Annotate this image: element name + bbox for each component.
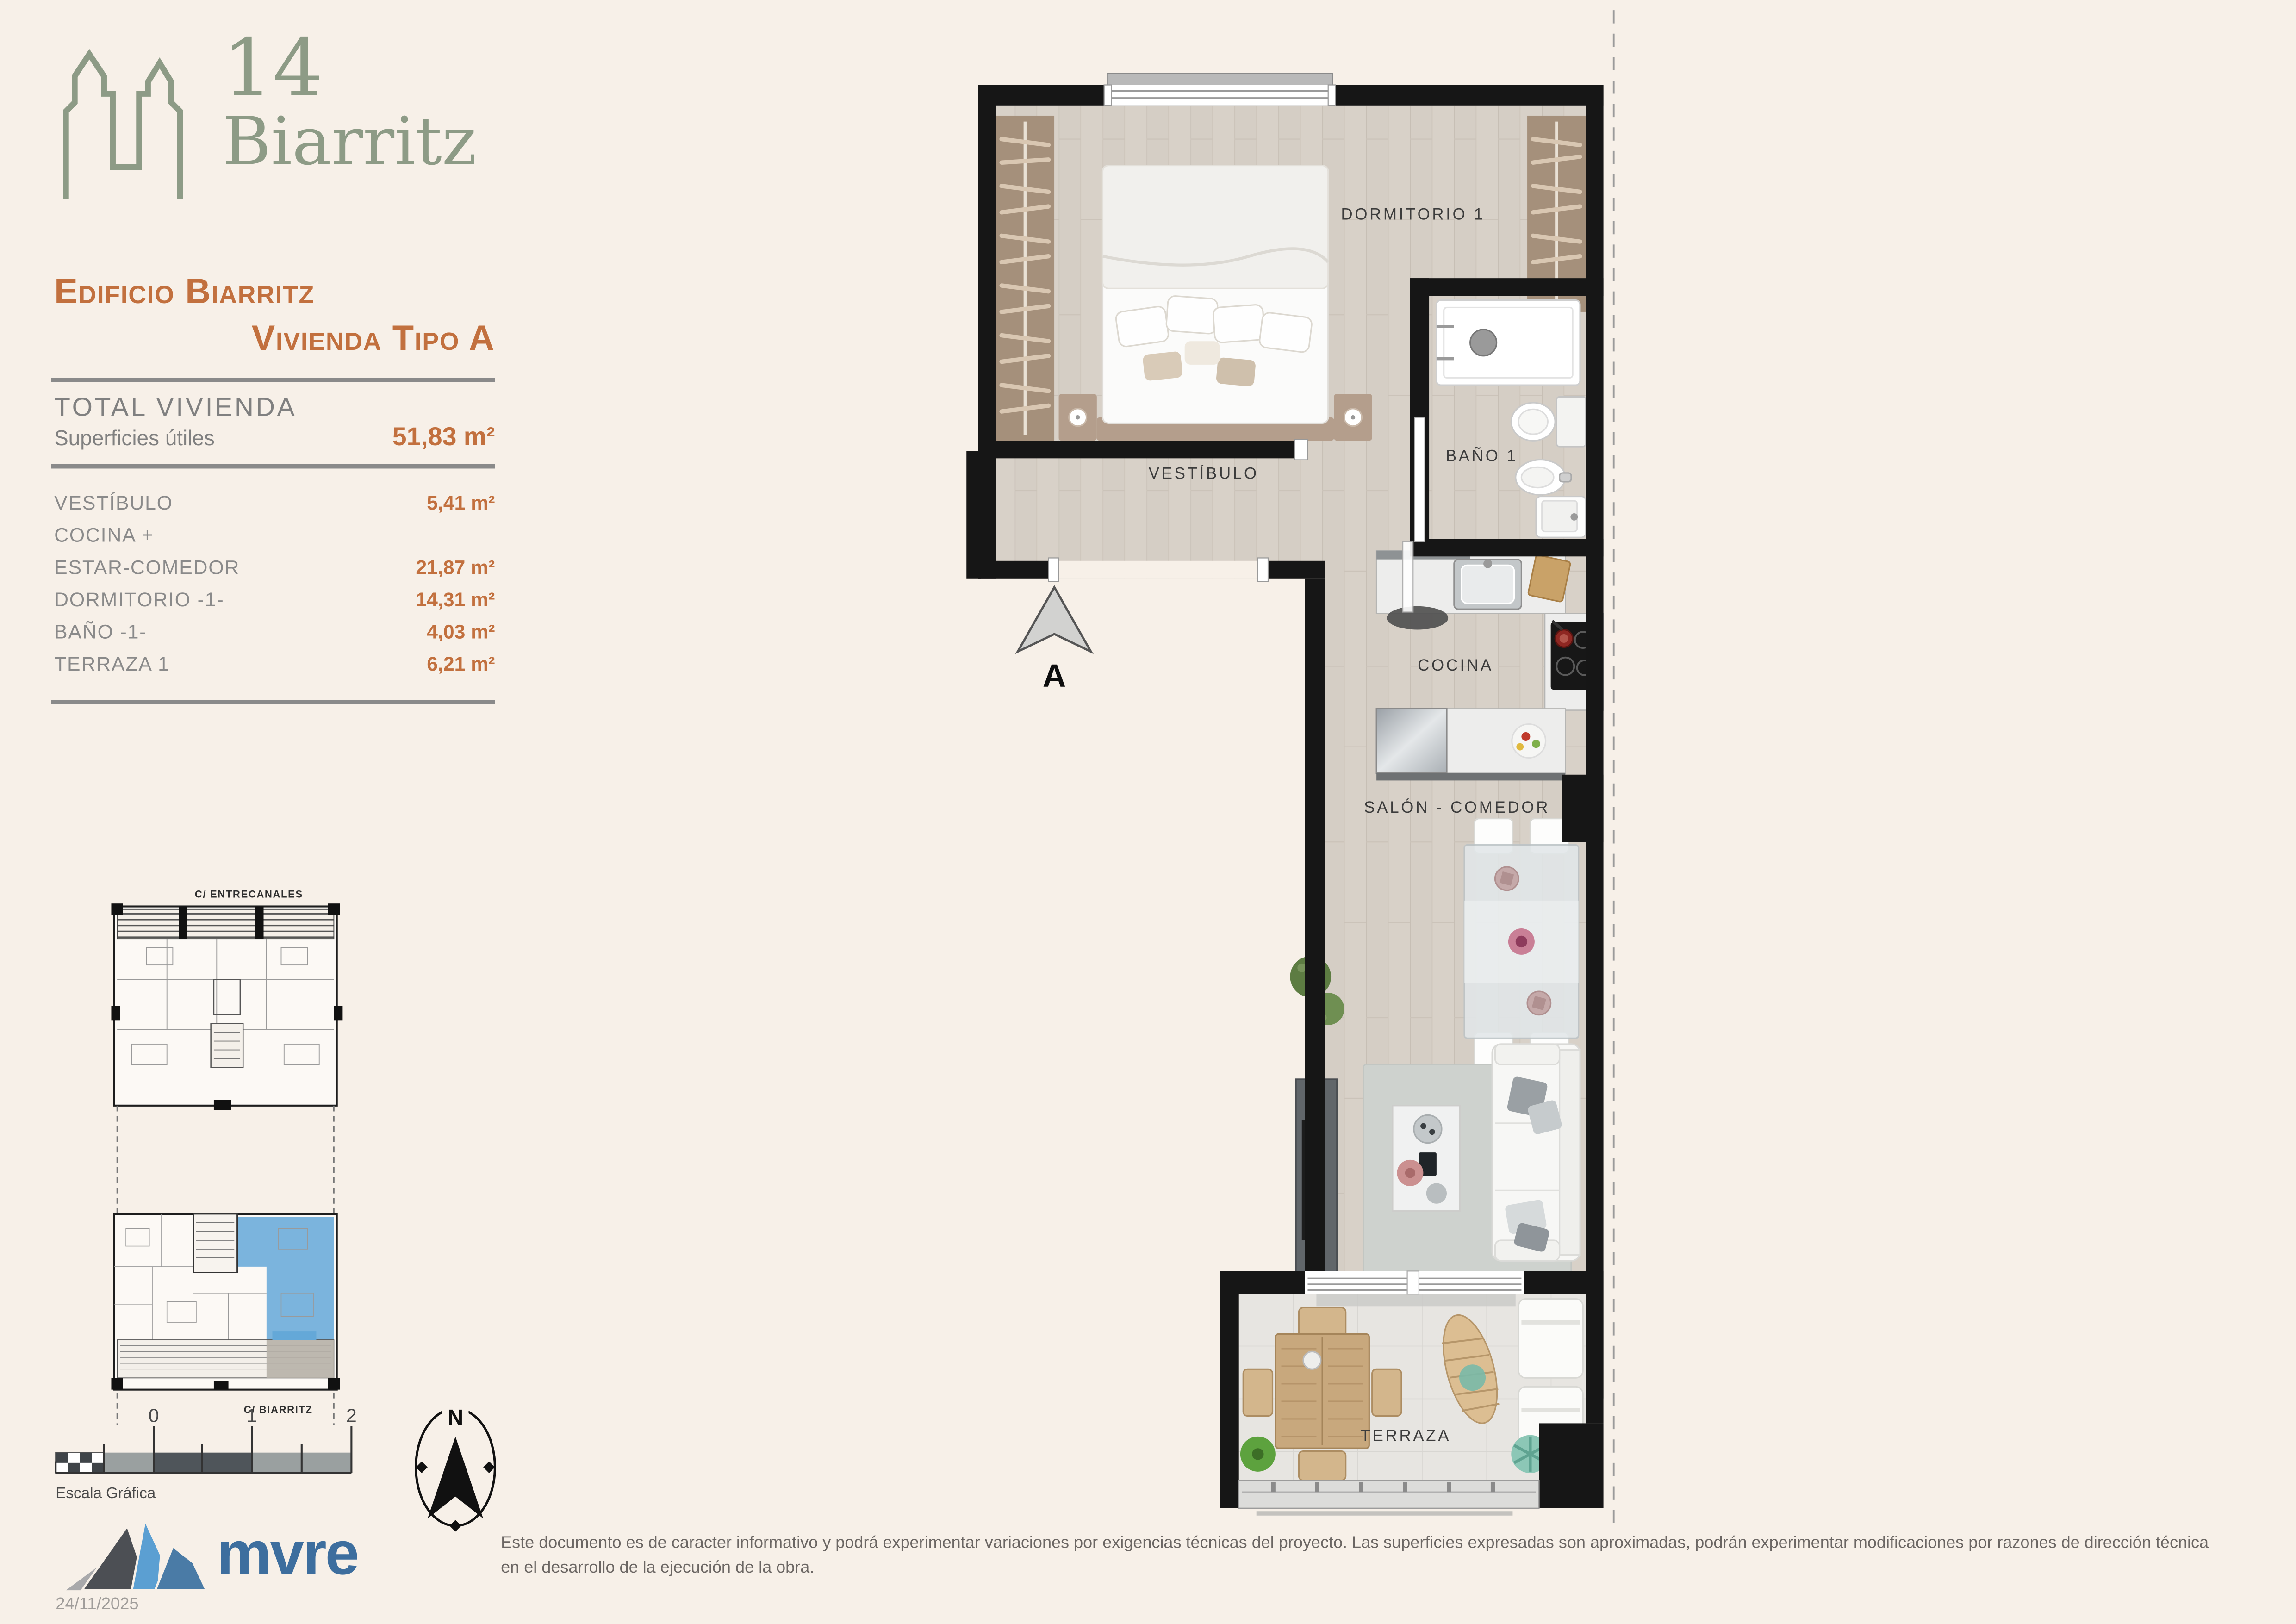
lower-building-block	[111, 1214, 340, 1390]
room-label: TERRAZA 1	[54, 653, 170, 675]
brand-logo: 14 Biarritz	[59, 38, 527, 206]
coffee-table	[1393, 1106, 1460, 1211]
bedroom-window	[1104, 73, 1336, 106]
terrace-window	[1305, 1271, 1524, 1306]
room-label: BAÑO -1-	[54, 621, 147, 643]
room-label: COCINA +	[54, 524, 154, 546]
divider-top	[51, 378, 495, 382]
label-vestibule: VESTÍBULO	[1149, 465, 1259, 483]
washbasin	[1536, 497, 1586, 538]
sofa	[1492, 1044, 1580, 1261]
table-row: COCINA +	[54, 524, 495, 548]
room-value: 21,87 m²	[416, 556, 495, 578]
section-marker: A	[1018, 587, 1091, 694]
label-living: SALÓN - COMEDOR	[1364, 798, 1550, 816]
entrance-opening	[1048, 558, 1268, 581]
graphic-scale: 0 1 2	[44, 1409, 381, 1485]
disclaimer-text: Este documento es de caracter informativ…	[501, 1532, 2232, 1580]
scale-caption: Escala Gráfica	[56, 1485, 156, 1502]
upper-building-block	[111, 903, 342, 1110]
bathroom-sliding-door-leaf	[1403, 542, 1413, 612]
north-compass: N	[407, 1401, 504, 1533]
shower-tray	[1437, 300, 1580, 386]
divider-mid	[51, 464, 495, 468]
bed	[1059, 166, 1372, 441]
room-label: DORMITORIO -1-	[54, 589, 224, 610]
brand-number: 14	[223, 29, 323, 108]
table-row: TERRAZA 1 6,21 m²	[54, 653, 495, 677]
scale-checker	[56, 1453, 104, 1473]
section-marker-label: A	[1043, 658, 1066, 694]
label-bath: BAÑO 1	[1446, 447, 1518, 465]
room-value: 14,31 m²	[416, 589, 495, 610]
terrace-railing	[1239, 1481, 1539, 1516]
street-label-top: C/ ENTRECANALES	[195, 889, 303, 900]
compass-needle	[428, 1437, 483, 1518]
room-value: 4,03 m²	[427, 621, 495, 643]
table-row: BAÑO -1- 4,03 m²	[54, 621, 495, 645]
bedroom-door-jamb	[1294, 439, 1307, 460]
label-terrace: TERRAZA	[1361, 1426, 1451, 1444]
floor-plan: A DORMITORIO 1 VESTÍBULO BAÑO 1 COCINA S…	[964, 0, 1637, 1624]
brochure-page: 14 Biarritz Edificio Biarritz Vivienda T…	[0, 0, 2296, 1624]
terrace-plant-green-core	[1252, 1448, 1263, 1460]
dining-set	[1464, 819, 1579, 1068]
scale-label-2: 2	[346, 1409, 357, 1426]
date: 24/11/2025	[56, 1596, 138, 1614]
room-value: 6,21 m²	[427, 653, 495, 675]
label-bedroom: DORMITORIO 1	[1341, 205, 1486, 224]
mvre-mountain-icon	[62, 1517, 215, 1593]
room-value: 5,41 m²	[427, 492, 495, 514]
compass-north-label: N	[448, 1406, 463, 1430]
table-heading: TOTAL VIVIENDA	[54, 392, 297, 423]
bathroom-sliding-door	[1414, 417, 1425, 542]
table-row: ESTAR-COMEDOR 21,87 m²	[54, 556, 495, 580]
towers-icon	[59, 41, 199, 202]
table-row: DORMITORIO -1- 14,31 m²	[54, 589, 495, 612]
table-row: VESTÍBULO 5,41 m²	[54, 492, 495, 516]
mvre-logo-text: mvre	[217, 1523, 358, 1585]
total-surface-value: 51,83 m²	[51, 422, 495, 452]
scale-label-1: 1	[247, 1409, 257, 1426]
label-kitchen: COCINA	[1418, 656, 1493, 674]
room-label: ESTAR-COMEDOR	[54, 556, 240, 578]
building-title: Edificio Biarritz	[54, 275, 315, 311]
unit-title: Vivienda Tipo A	[54, 322, 495, 357]
scale-label-0: 0	[149, 1409, 159, 1426]
brand-name: Biarritz	[223, 108, 477, 174]
room-label: VESTÍBULO	[54, 492, 173, 514]
wardrobe-left	[996, 116, 1055, 441]
site-key-plan: C/ ENTRECANALES	[102, 883, 351, 1447]
divider-bottom	[51, 700, 495, 704]
